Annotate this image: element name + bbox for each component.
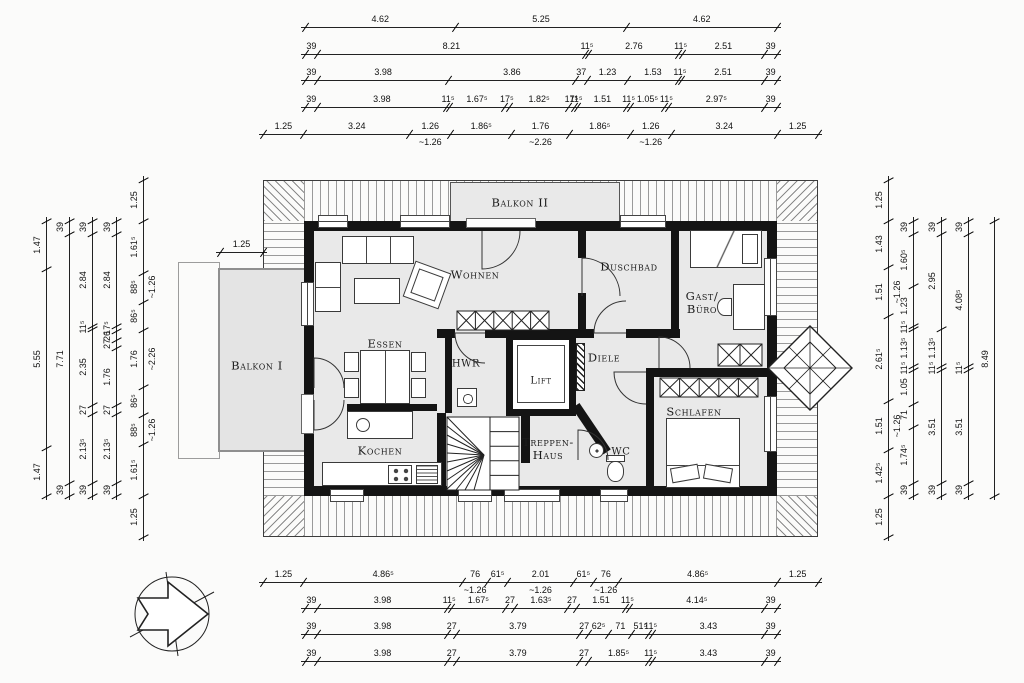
floorplan-drawing: Balkon II Wohnen Duschbad Gast/ Büro Ess… (0, 0, 1024, 683)
dim-label: 2.95 (927, 273, 937, 291)
dim-label: 1.05⁵ (637, 94, 658, 104)
dim-label: 1.82⁵ (529, 94, 550, 104)
dim-label: 3.98 (374, 67, 392, 77)
dim-label: 39 (102, 222, 112, 232)
dim-label: 1.86⁵ (589, 121, 610, 131)
dim-sublabel: ~1.26 (639, 137, 662, 147)
dim-label: 4.08⁵ (954, 289, 964, 310)
dim-label: 1.76 (102, 368, 112, 386)
dim-label: 1.74⁵ (899, 444, 909, 465)
dim-label: 3.43 (700, 648, 718, 658)
dim-label: 2.61⁵ (874, 348, 884, 369)
dim-label: 1.61⁵ (129, 236, 139, 257)
dim-label: 1.63⁵ (530, 595, 551, 605)
dim-label: 17⁵ (500, 94, 514, 104)
dim-label: 61⁵ (491, 569, 505, 579)
dim-label: 27 (102, 339, 112, 349)
dim-label: 88⁵ (129, 423, 139, 437)
dim-label: 2.76 (625, 41, 643, 51)
dim-label: 39 (306, 94, 316, 104)
dim-label: 1.25 (275, 121, 293, 131)
dim-label: 76 (601, 569, 611, 579)
dim-label: 1.23 (599, 67, 617, 77)
dim-label: 1.76 (129, 350, 139, 368)
dim-label: 27 (579, 648, 589, 658)
dim-label: 1.23 (899, 297, 909, 315)
dim-label: 27 (78, 405, 88, 415)
dim-label: 2.51 (715, 41, 733, 51)
dim-label: 3.24 (715, 121, 733, 131)
dim-label: 27 (447, 648, 457, 658)
dim-label: 39 (766, 67, 776, 77)
dim-label: 4.14⁵ (686, 595, 707, 605)
dim-label: 3.51 (927, 418, 937, 436)
dim-label: 1.05 (899, 378, 909, 396)
dim-label: 3.43 (700, 621, 718, 631)
dim-label: 2.84 (78, 271, 88, 289)
dim-line-t5 (259, 134, 822, 135)
dim-sublabel: ~1.26 (464, 585, 487, 595)
dim-label: 11⁵ (954, 361, 964, 374)
dim-label: 1.25 (129, 192, 139, 210)
dim-label: 3.79 (509, 648, 527, 658)
dim-label: 1.85⁵ (608, 648, 629, 658)
dim-line-b1 (259, 582, 822, 583)
dim-label: 39 (102, 485, 112, 495)
dim-line-r4 (968, 217, 969, 500)
dim-label: 39 (55, 485, 65, 495)
dim-label: 39 (766, 595, 776, 605)
dim-sublabel: ~1.26 (147, 276, 157, 299)
dim-label: 1.25 (874, 508, 884, 526)
dim-label: 86⁵ (129, 309, 139, 323)
dim-label: 1.13⁵ (927, 337, 937, 358)
dim-label: 11⁵ (570, 94, 583, 104)
dim-label: 39 (55, 222, 65, 232)
dim-label: 1.76 (532, 121, 550, 131)
dim-label: 1.61⁵ (129, 460, 139, 481)
dim-label: 3.86 (503, 67, 521, 77)
dim-sublabel: ~1.26 (594, 585, 617, 595)
dim-label: 1.53 (644, 67, 662, 77)
dim-label: 11⁵ (580, 41, 593, 51)
dim-line-r1 (888, 176, 889, 541)
dim-label: 3.98 (374, 648, 392, 658)
dim-label: 1.60⁵ (899, 249, 909, 270)
dim-label: 39 (954, 485, 964, 495)
dim-line-r3 (941, 217, 942, 500)
dim-label: 39 (766, 94, 776, 104)
dim-label: 88⁵ (129, 281, 139, 295)
dim-label: 71 (615, 621, 625, 631)
dim-label: 11⁵ (443, 595, 456, 605)
dim-line-l2 (69, 217, 70, 500)
dim-label: 1.67⁵ (466, 94, 487, 104)
dim-line-r5 (994, 217, 995, 500)
dim-label: 39 (78, 485, 88, 495)
dim-label: 11⁵ (899, 361, 909, 374)
dim-label: 2.13⁵ (78, 438, 88, 459)
dim-label: 39 (306, 41, 316, 51)
dim-label: 8.21 (443, 41, 461, 51)
dim-label: 11⁵ (622, 94, 635, 104)
dim-label: 11⁵ (899, 321, 909, 334)
dim-label: 4.86⁵ (373, 569, 394, 579)
dim-label: 1.86⁵ (471, 121, 492, 131)
dim-label: 39 (306, 648, 316, 658)
dim-label: 71 (899, 410, 909, 420)
dim-line-t1 (301, 27, 781, 28)
dim-label: 2.51 (714, 67, 732, 77)
dim-label: 2.01 (532, 569, 550, 579)
dim-label: 11⁵ (673, 67, 686, 77)
dim-label: 11⁵ (644, 621, 657, 631)
dim-line-t3 (301, 80, 781, 81)
dim-label: 62⁵ (592, 621, 606, 631)
dim-sublabel: ~1.26 (147, 418, 157, 441)
dim-label: 2.97⁵ (706, 94, 727, 104)
dimension-chains: 4.625.254.62398.2111⁵2.7611⁵2.5139393.98… (0, 0, 1024, 683)
dim-label: 39 (306, 67, 316, 77)
dim-label: 1.51 (874, 417, 884, 435)
dim-label: 3.51 (954, 418, 964, 436)
dim-label: 5.25 (532, 14, 550, 24)
dim-label: 11⁵ (674, 41, 687, 51)
dim-sublabel: ~2.26 (147, 347, 157, 370)
dim-sublabel: ~1.26 (419, 137, 442, 147)
dim-label: 39 (927, 222, 937, 232)
dim-label: 4.62 (371, 14, 389, 24)
dim-label: 37 (576, 67, 586, 77)
dim-label: 39 (306, 621, 316, 631)
dim-label: 1.25 (789, 569, 807, 579)
dim-label: 1.25 (789, 121, 807, 131)
dim-label: 61⁵ (576, 569, 590, 579)
dim-line-l1 (46, 217, 47, 500)
dim-label: 11⁵ (621, 595, 634, 605)
dim-label: 39 (78, 222, 88, 232)
dim-label: 1.26 (642, 121, 660, 131)
dim-label: 11⁵ (441, 94, 454, 104)
dim-label: 1.25 (233, 239, 251, 249)
dim-label: 39 (766, 41, 776, 51)
dim-line-bk (216, 252, 267, 253)
dim-label: 2.13⁵ (102, 438, 112, 459)
dim-sublabel: ~2.26 (529, 137, 552, 147)
dim-label: 2.84 (102, 271, 112, 289)
dim-label: 27 (579, 621, 589, 631)
dim-label: 11⁵ (660, 94, 673, 104)
dim-label: 2.35 (78, 359, 88, 377)
dim-label: 39 (306, 595, 316, 605)
dim-label: 1.25 (874, 192, 884, 210)
dim-line-b4 (301, 661, 781, 662)
dim-label: 27 (447, 621, 457, 631)
dim-label: 4.86⁵ (687, 569, 708, 579)
dim-label: 11⁵ (927, 361, 937, 374)
dim-label: 1.51 (874, 283, 884, 301)
dim-label: 4.62 (693, 14, 711, 24)
dim-line-b2 (301, 608, 781, 609)
dim-label: 3.98 (374, 621, 392, 631)
dim-label: 86⁵ (129, 394, 139, 408)
dim-label: 27 (102, 405, 112, 415)
dim-label: 3.98 (373, 94, 391, 104)
dim-label: 11⁵ (78, 321, 88, 334)
dim-line-b3 (301, 634, 781, 635)
dim-label: 3.98 (374, 595, 392, 605)
dim-label: 39 (899, 222, 909, 232)
dim-label: 1.47 (32, 463, 42, 481)
dim-label: 1.51 (594, 94, 612, 104)
dim-label: 27 (505, 595, 515, 605)
dim-line-t2 (301, 54, 781, 55)
dim-label: 27 (567, 595, 577, 605)
dim-label: 3.24 (348, 121, 366, 131)
dim-line-r2 (913, 217, 914, 500)
dim-line-l4 (116, 217, 117, 500)
dim-label: 1.67⁵ (468, 595, 489, 605)
dim-label: 11⁵ (644, 648, 657, 658)
dim-label: 76 (470, 569, 480, 579)
dim-line-l5 (143, 176, 144, 541)
dim-label: 1.13⁵ (899, 337, 909, 358)
dim-label: 1.47 (32, 236, 42, 254)
dim-line-t4 (301, 107, 781, 108)
dim-label: 1.26 (421, 121, 439, 131)
dim-label: 39 (899, 485, 909, 495)
dim-label: 39 (954, 222, 964, 232)
dim-label: 3.79 (509, 621, 527, 631)
dim-label: 1.25 (275, 569, 293, 579)
dim-label: 7.71 (55, 350, 65, 368)
dim-label: 8.49 (980, 350, 990, 368)
dim-label: 1.43 (874, 235, 884, 253)
dim-label: 39 (766, 648, 776, 658)
dim-label: 5.55 (32, 350, 42, 368)
dim-label: 39 (766, 621, 776, 631)
dim-label: 39 (927, 485, 937, 495)
dim-label: 1.51 (592, 595, 610, 605)
dim-line-l3 (92, 217, 93, 500)
dim-label: 1.25 (129, 508, 139, 526)
dim-sublabel: ~1.26 (529, 585, 552, 595)
dim-label: 1.42⁵ (874, 463, 884, 484)
